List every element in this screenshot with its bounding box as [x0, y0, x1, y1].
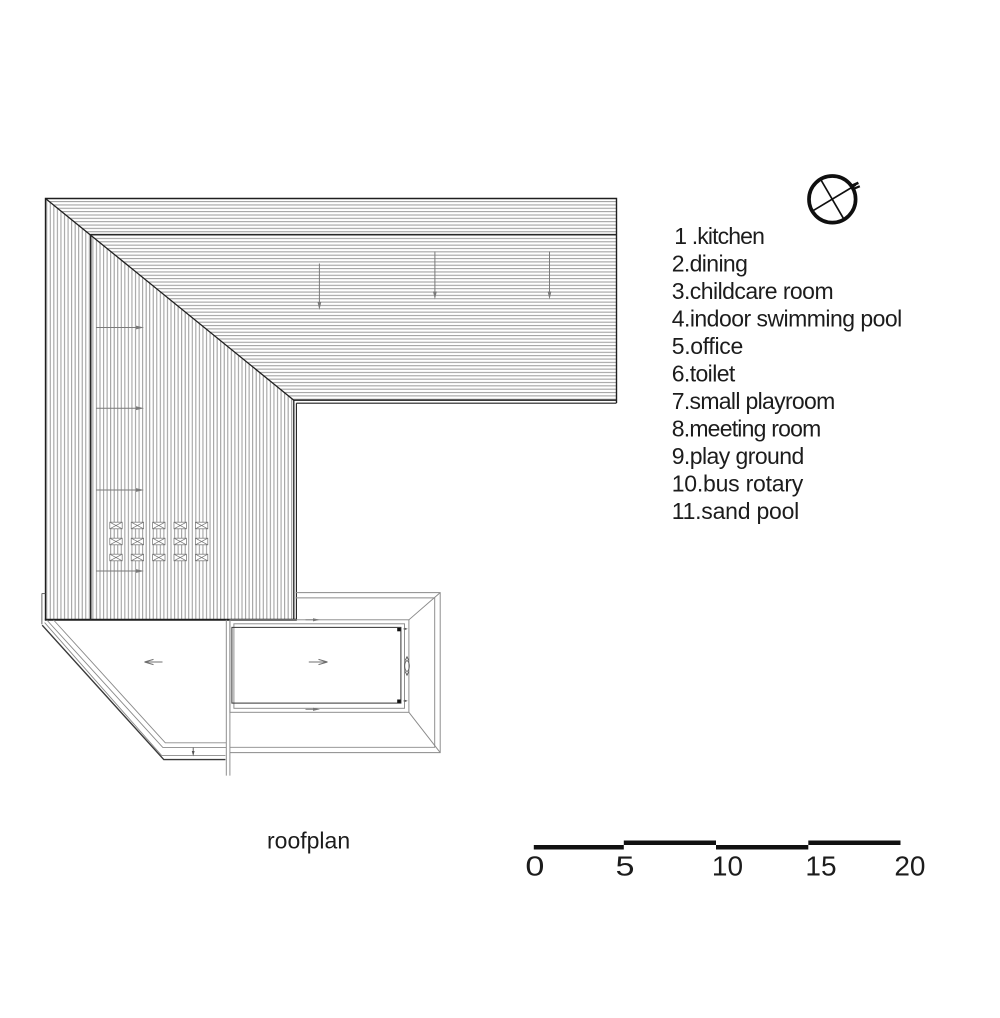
svg-text:2.dining: 2.dining: [672, 251, 749, 277]
svg-text:10: 10: [712, 851, 743, 882]
svg-text:20: 20: [894, 851, 925, 882]
svg-text:roofplan: roofplan: [267, 828, 350, 854]
svg-text:6.toilet: 6.toilet: [672, 361, 736, 387]
svg-text:10.bus rotary: 10.bus rotary: [672, 471, 804, 497]
svg-text:3.childcare room: 3.childcare room: [672, 278, 834, 304]
svg-text:1 .kitchen: 1 .kitchen: [674, 223, 765, 249]
svg-text:7.small playroom: 7.small playroom: [672, 388, 836, 414]
svg-text:0: 0: [525, 851, 544, 882]
svg-text:11.sand pool: 11.sand pool: [672, 498, 800, 524]
svg-text:4.indoor swimming pool: 4.indoor swimming pool: [672, 306, 903, 332]
svg-text:8.meeting room: 8.meeting room: [672, 416, 822, 442]
svg-text:9.play ground: 9.play ground: [672, 443, 805, 469]
svg-text:5: 5: [616, 851, 635, 882]
svg-text:15: 15: [805, 851, 836, 882]
svg-text:5.office: 5.office: [672, 333, 744, 359]
